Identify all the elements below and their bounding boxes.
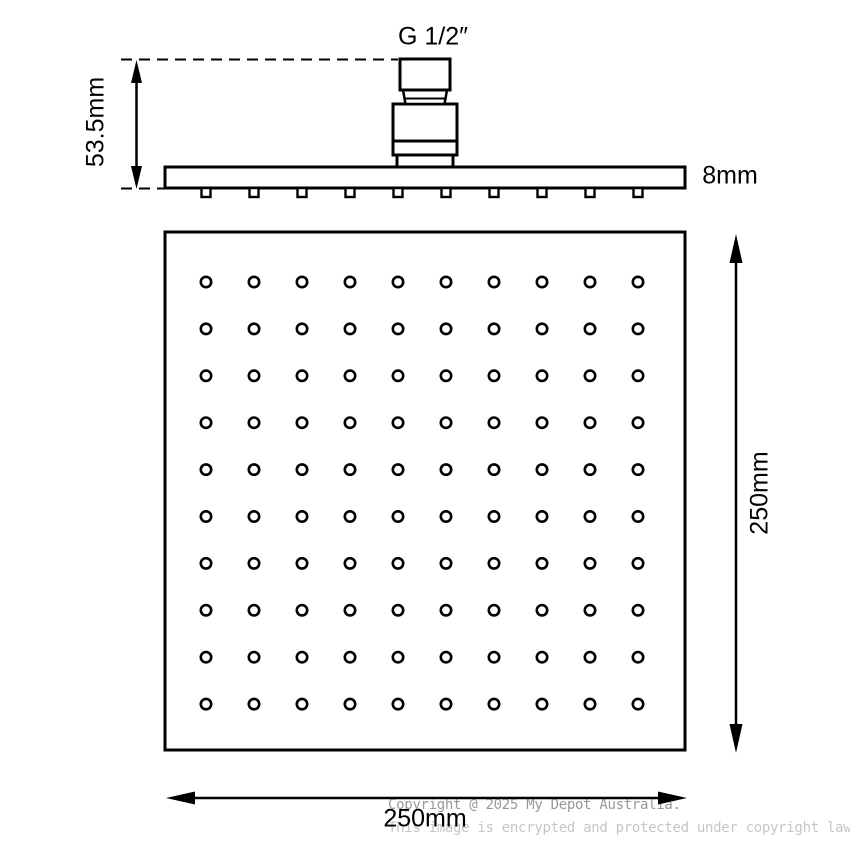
nozzle-hole [201, 418, 211, 428]
nozzle-hole [201, 371, 211, 381]
side-nozzle [346, 188, 355, 197]
nozzle-hole [345, 558, 355, 568]
connector-collar [403, 90, 447, 104]
nozzle-hole [249, 699, 259, 709]
nozzle-hole [585, 277, 595, 287]
nozzle-hole [249, 558, 259, 568]
nozzle-hole [489, 464, 499, 474]
nozzle-hole [297, 324, 307, 334]
nozzle-hole [297, 652, 307, 662]
nozzle-hole [297, 277, 307, 287]
nozzle-hole [393, 324, 403, 334]
nozzle-hole [489, 418, 499, 428]
nozzle-hole [249, 324, 259, 334]
nozzle-hole [585, 558, 595, 568]
nozzle-hole [489, 511, 499, 521]
nozzle-hole [393, 464, 403, 474]
nozzle-hole [345, 277, 355, 287]
nozzle-hole [201, 511, 211, 521]
nozzle-hole [249, 418, 259, 428]
nozzle-hole [393, 558, 403, 568]
side-nozzle [202, 188, 211, 197]
arrowhead-up-icon [730, 234, 743, 263]
face-height-dimension-arrow [730, 234, 743, 753]
thread-size-label: G 1/2″ [398, 23, 468, 51]
nozzle-hole [441, 464, 451, 474]
nozzle-hole [441, 371, 451, 381]
nozzle-hole [585, 511, 595, 521]
nozzle-hole [345, 371, 355, 381]
nozzle-hole [441, 277, 451, 287]
nozzle-hole [201, 699, 211, 709]
nozzle-hole [441, 558, 451, 568]
nozzle-hole [633, 699, 643, 709]
nozzle-hole [393, 371, 403, 381]
nozzle-hole [393, 418, 403, 428]
side-nozzle [586, 188, 595, 197]
technical-drawing [0, 0, 850, 850]
nozzle-hole [345, 418, 355, 428]
nozzle-hole [585, 324, 595, 334]
nozzle-hole [345, 699, 355, 709]
side-nozzle [298, 188, 307, 197]
face-width-dimension-arrow [166, 792, 687, 805]
nozzle-hole [297, 418, 307, 428]
nozzle-hole [585, 371, 595, 381]
nozzle-hole [393, 511, 403, 521]
nozzle-hole [633, 277, 643, 287]
nozzle-hole [489, 371, 499, 381]
nozzle-hole [489, 652, 499, 662]
nozzle-hole [537, 371, 547, 381]
side-nozzle [394, 188, 403, 197]
nozzle-hole [537, 605, 547, 615]
nozzle-hole [633, 511, 643, 521]
shower-plate [165, 167, 685, 188]
nozzle-hole [633, 418, 643, 428]
nozzle-hole [489, 605, 499, 615]
connector-band [393, 141, 457, 155]
face-plate [165, 232, 685, 750]
nozzle-hole [537, 511, 547, 521]
arrowhead-right-icon [658, 792, 687, 805]
connector-thread [400, 59, 450, 90]
nozzle-hole [441, 605, 451, 615]
nozzle-hole [249, 605, 259, 615]
nozzle-hole [201, 464, 211, 474]
nozzle-hole [393, 277, 403, 287]
nozzle-hole [345, 324, 355, 334]
nozzle-hole [345, 652, 355, 662]
nozzle-hole [441, 652, 451, 662]
nozzle-hole [633, 652, 643, 662]
nozzle-hole [633, 371, 643, 381]
arrowhead-down-icon [131, 166, 142, 189]
nozzle-hole [585, 652, 595, 662]
nozzle-hole [633, 324, 643, 334]
nozzle-hole [537, 699, 547, 709]
nozzle-hole [441, 699, 451, 709]
nozzle-hole [489, 324, 499, 334]
nozzle-hole [537, 558, 547, 568]
face-view [165, 232, 743, 805]
nozzle-hole [585, 699, 595, 709]
nozzle-hole [537, 464, 547, 474]
nozzle-hole [393, 652, 403, 662]
nozzle-hole [537, 652, 547, 662]
nozzle-hole [585, 605, 595, 615]
height-dimension-arrow [131, 60, 142, 189]
arrowhead-down-icon [730, 724, 743, 753]
nozzle-hole [633, 558, 643, 568]
nozzle-hole [297, 371, 307, 381]
nozzle-hole [489, 699, 499, 709]
nozzle-hole [393, 605, 403, 615]
nozzle-hole [297, 511, 307, 521]
nozzle-hole [441, 511, 451, 521]
nozzle-hole [441, 418, 451, 428]
arrowhead-up-icon [131, 60, 142, 83]
side-view [121, 59, 685, 197]
nozzle-hole [345, 511, 355, 521]
nozzle-hole [249, 277, 259, 287]
nozzle-hole [489, 277, 499, 287]
nozzle-hole [345, 605, 355, 615]
side-nozzle [634, 188, 643, 197]
arrowhead-left-icon [166, 792, 195, 805]
nozzle-hole [633, 605, 643, 615]
side-nozzle [442, 188, 451, 197]
nozzle-hole [537, 418, 547, 428]
nozzle-hole [201, 605, 211, 615]
head-height-label: 53.5mm [82, 77, 110, 167]
nozzle-hole [249, 652, 259, 662]
nozzle-hole [489, 558, 499, 568]
nozzle-hole [249, 511, 259, 521]
connector-body [393, 104, 457, 141]
diagram-canvas: Copyright @ 2025 My Depot Australia. Thi… [0, 0, 850, 850]
nozzle-hole [393, 699, 403, 709]
nozzle-hole [297, 699, 307, 709]
side-nozzle [250, 188, 259, 197]
nozzle-hole [201, 324, 211, 334]
side-nozzle [490, 188, 499, 197]
nozzle-hole [297, 464, 307, 474]
nozzle-hole [585, 464, 595, 474]
nozzle-hole [537, 277, 547, 287]
nozzle-hole [537, 324, 547, 334]
nozzle-hole [441, 324, 451, 334]
nozzle-hole [297, 605, 307, 615]
nozzle-hole [201, 652, 211, 662]
nozzle-hole [345, 464, 355, 474]
side-nozzle [538, 188, 547, 197]
nozzle-hole [633, 464, 643, 474]
nozzle-hole [201, 558, 211, 568]
nozzle-hole [585, 418, 595, 428]
face-height-label: 250mm [746, 451, 774, 534]
plate-thickness-label: 8mm [702, 162, 758, 190]
nozzle-hole [297, 558, 307, 568]
nozzle-hole [201, 277, 211, 287]
face-width-label: 250mm [383, 805, 466, 833]
connector-stack [393, 59, 457, 169]
nozzle-hole [249, 371, 259, 381]
nozzle-hole [249, 464, 259, 474]
